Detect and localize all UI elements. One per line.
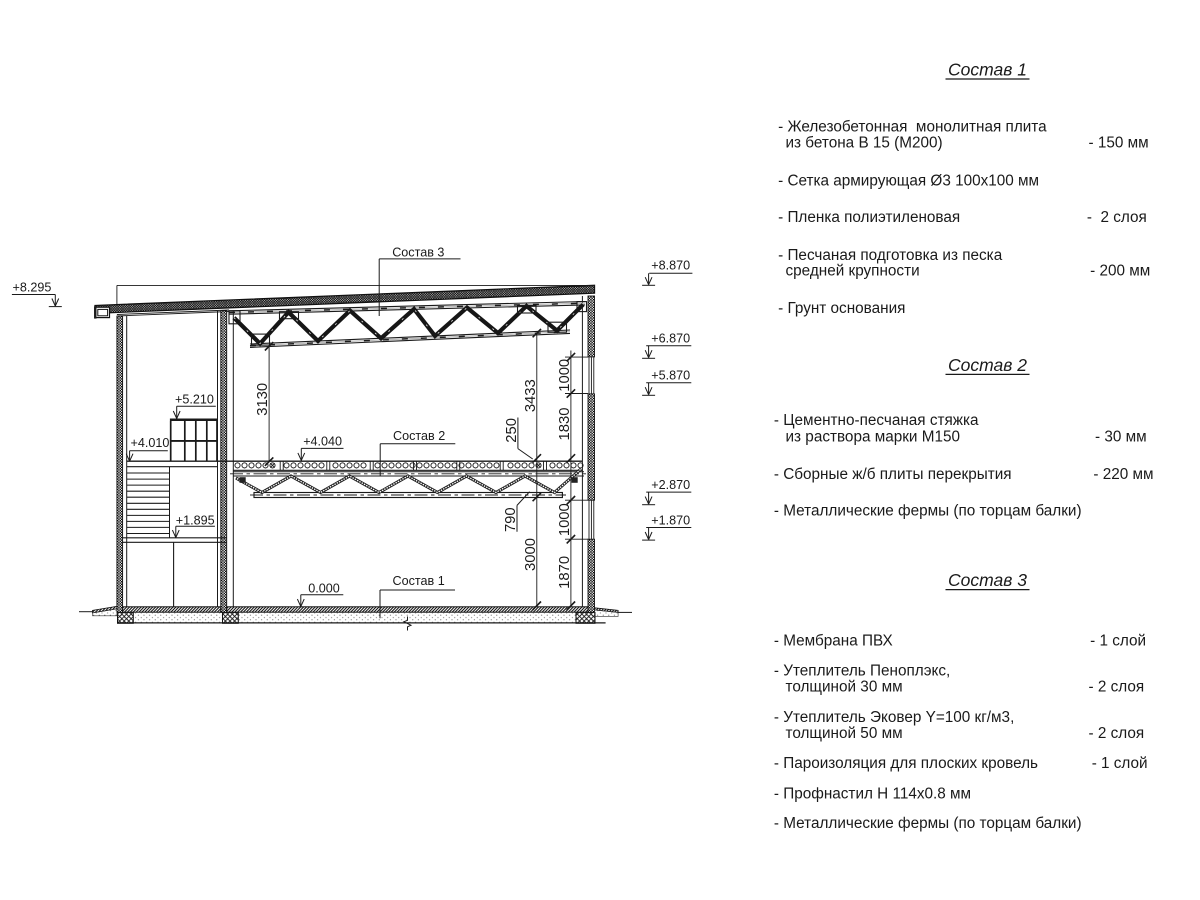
svg-text:- Профнастил Н 114х0.8 мм: - Профнастил Н 114х0.8 мм (774, 785, 971, 802)
svg-text:+1.895: +1.895 (176, 514, 215, 528)
svg-text:- Металлические фермы (по торц: - Металлические фермы (по торцам балки) (774, 503, 1082, 520)
svg-text:Состав 3: Состав 3 (948, 570, 1027, 590)
svg-text:Состав 1: Состав 1 (393, 574, 445, 588)
svg-text:- 1 слой: - 1 слой (1090, 632, 1146, 649)
svg-text:- Мембрана ПВХ: - Мембрана ПВХ (774, 632, 893, 649)
svg-text:- 1 слой: - 1 слой (1092, 755, 1148, 772)
svg-text:- 220 мм: - 220 мм (1093, 466, 1153, 483)
svg-text:Состав 3: Состав 3 (392, 245, 444, 259)
svg-text:Состав 2: Состав 2 (393, 429, 445, 443)
svg-text:- Железобетонная монолитная п: - Железобетонная монолитная плита (778, 118, 1047, 135)
svg-text:+6.870: +6.870 (651, 331, 690, 345)
svg-text:+4.040: +4.040 (303, 434, 342, 448)
svg-text:+2.870: +2.870 (651, 478, 690, 492)
svg-text:+1.870: +1.870 (651, 513, 690, 527)
svg-text:- 2 слоя: - 2 слоя (1087, 209, 1147, 226)
svg-text:- Утеплитель Пеноплэкс,: - Утеплитель Пеноплэкс, (774, 663, 950, 680)
svg-text:толщиной 50 мм: толщиной 50 мм (786, 725, 903, 742)
svg-text:- Сетка армирующая Ø3 100х100: - Сетка армирующая Ø3 100х100 мм (778, 173, 1039, 190)
svg-text:+8.870: +8.870 (651, 259, 690, 273)
svg-text:+5.210: +5.210 (175, 393, 214, 407)
svg-text:Состав 1: Состав 1 (948, 60, 1027, 80)
svg-text:1870: 1870 (557, 556, 573, 589)
svg-text:- Цементно-песчаная стяжка: - Цементно-песчаная стяжка (774, 412, 979, 429)
svg-text:- Пленка полиэтиленовая: - Пленка полиэтиленовая (778, 209, 960, 226)
svg-text:1000: 1000 (557, 359, 573, 392)
svg-text:из раствора марки М150: из раствора марки М150 (786, 428, 961, 445)
svg-text:1000: 1000 (557, 503, 573, 536)
svg-text:средней крупности: средней крупности (786, 263, 920, 280)
svg-text:- 150 мм: - 150 мм (1089, 135, 1149, 152)
svg-text:- 30 мм: - 30 мм (1095, 428, 1147, 445)
svg-text:+8.295: +8.295 (13, 281, 52, 295)
svg-text:0.000: 0.000 (308, 582, 340, 596)
svg-text:Состав 2: Состав 2 (948, 355, 1027, 375)
svg-text:- 2 слоя: - 2 слоя (1089, 725, 1145, 742)
svg-text:3000: 3000 (523, 538, 539, 571)
svg-text:- Грунт основания: - Грунт основания (778, 300, 905, 317)
svg-text:- Пароизоляция для плоских кро: - Пароизоляция для плоских кровель (774, 755, 1038, 772)
svg-text:3130: 3130 (255, 383, 271, 416)
svg-text:- Утеплитель Эковер Y=100 кг/м: - Утеплитель Эковер Y=100 кг/м3, (774, 709, 1014, 726)
svg-text:+4.010: +4.010 (131, 436, 170, 450)
svg-text:1830: 1830 (557, 408, 573, 441)
svg-text:- 2 слоя: - 2 слоя (1089, 679, 1145, 696)
svg-text:- Металлические фермы (по торц: - Металлические фермы (по торцам балки) (774, 815, 1082, 832)
svg-text:толщиной 30 мм: толщиной 30 мм (786, 679, 903, 696)
svg-text:- Сборные ж/б плиты перекрытия: - Сборные ж/б плиты перекрытия (774, 466, 1012, 483)
svg-text:из бетона В 15 (М200): из бетона В 15 (М200) (786, 135, 943, 152)
svg-text:- 200 мм: - 200 мм (1090, 263, 1150, 280)
svg-text:+5.870: +5.870 (651, 368, 690, 382)
svg-text:3433: 3433 (523, 379, 539, 412)
